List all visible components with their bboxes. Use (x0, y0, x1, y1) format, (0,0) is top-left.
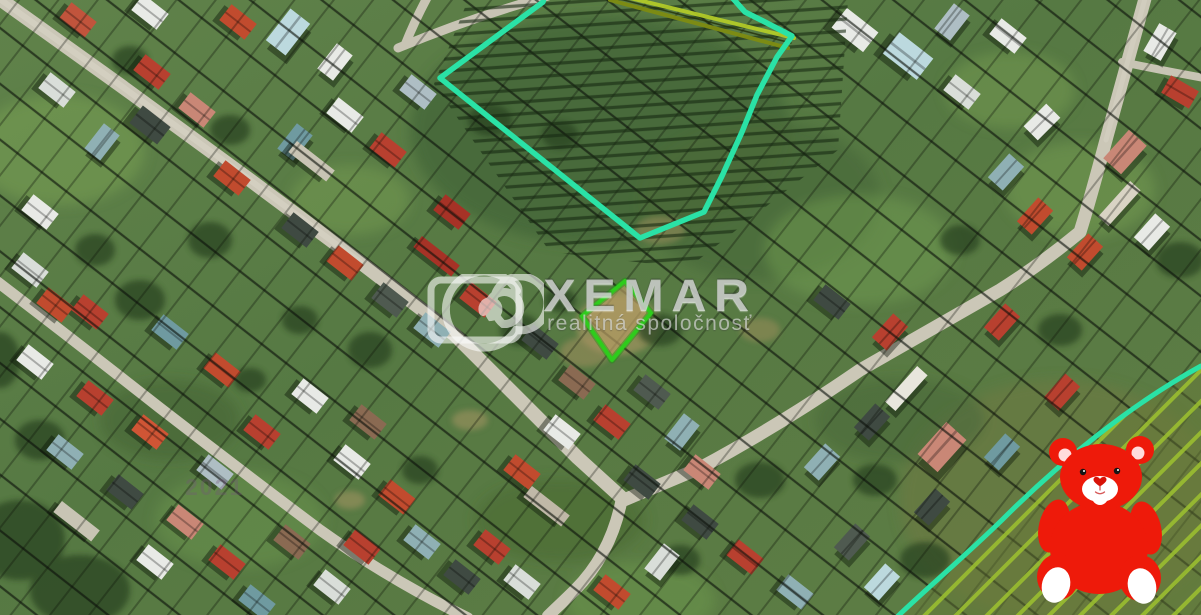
map-canvas: XEMAR realitná spoločnosť 2021 (0, 0, 1201, 615)
satellite-map (0, 0, 1201, 615)
teddy-bear-icon (1033, 436, 1167, 607)
